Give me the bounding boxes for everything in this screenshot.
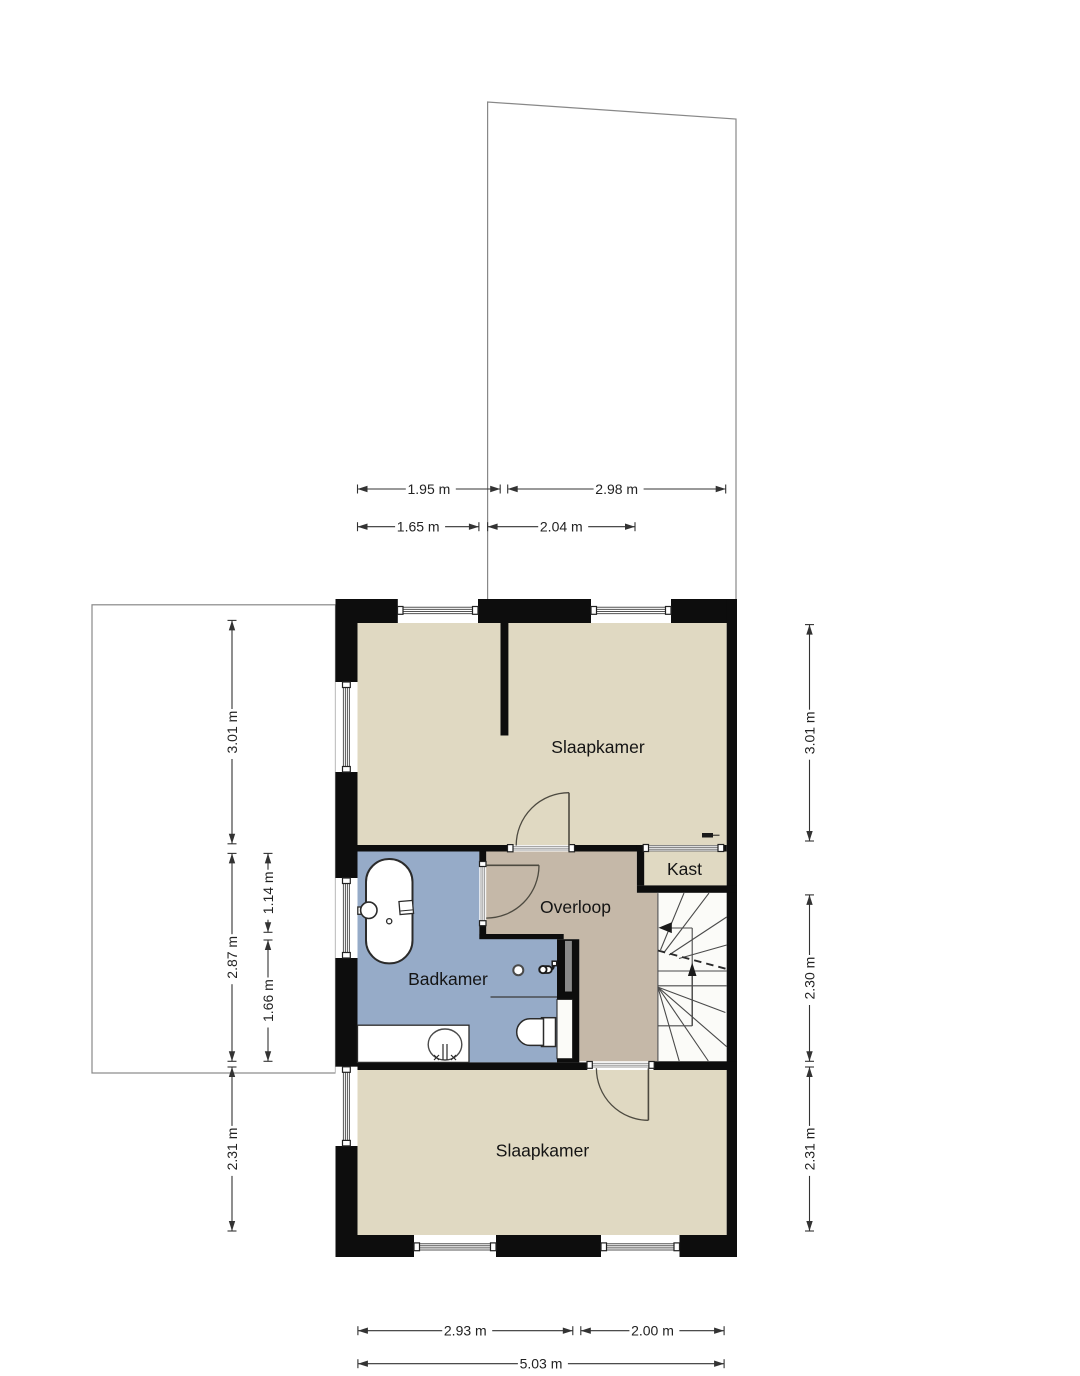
svg-text:1.14 m: 1.14 m [260,871,276,914]
svg-text:3.01 m: 3.01 m [224,711,240,754]
svg-text:2.00 m: 2.00 m [631,1323,674,1339]
svg-text:5.03 m: 5.03 m [520,1356,563,1372]
svg-text:Kast: Kast [667,859,702,879]
svg-text:Slaapkamer: Slaapkamer [496,1141,590,1161]
svg-text:1.95 m: 1.95 m [407,481,450,497]
svg-text:2.31 m: 2.31 m [224,1128,240,1171]
svg-text:Slaapkamer: Slaapkamer [551,737,645,757]
svg-text:2.98 m: 2.98 m [595,481,638,497]
svg-text:2.93 m: 2.93 m [444,1323,487,1339]
svg-text:1.66 m: 1.66 m [260,979,276,1022]
svg-text:1.65 m: 1.65 m [397,519,440,535]
svg-text:2.87 m: 2.87 m [224,936,240,979]
svg-text:Badkamer: Badkamer [408,969,488,989]
svg-text:3.01 m: 3.01 m [801,711,817,754]
svg-text:Overloop: Overloop [540,897,611,917]
svg-text:2.31 m: 2.31 m [801,1128,817,1171]
svg-text:2.30 m: 2.30 m [801,957,817,1000]
svg-text:2.04 m: 2.04 m [540,519,583,535]
